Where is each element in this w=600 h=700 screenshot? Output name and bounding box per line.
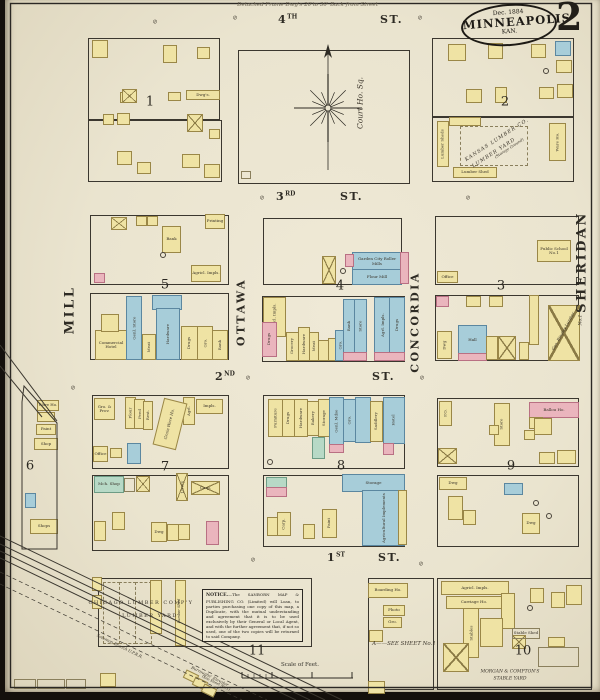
scale-label: Scale of Feet. [250, 662, 350, 668]
water-symbol: ⊘ [417, 15, 422, 22]
building [37, 679, 65, 689]
building-label: Agrl. [187, 406, 191, 416]
building-label: Grocery [290, 338, 294, 354]
building [266, 487, 287, 497]
building-agricl-impls: Agricl. Impls. [191, 265, 221, 282]
block-number-4: 4 [336, 279, 344, 294]
building-label: Meat [312, 341, 316, 351]
building-label: Bank [218, 340, 222, 350]
building-gro: Gro. [383, 617, 402, 628]
building [312, 437, 325, 459]
building-label: Dwg [526, 521, 535, 525]
water-symbol: ⊘ [70, 385, 75, 392]
building [103, 114, 114, 125]
building-dwg: Dwg [439, 477, 467, 490]
building-label: Paint [327, 518, 331, 528]
building-carp: Carp. [277, 512, 291, 536]
street-suffix: ST. [372, 370, 395, 383]
building [436, 296, 449, 307]
building [480, 618, 503, 647]
building [538, 647, 579, 667]
building-ware-ho: Ware Ho. [37, 400, 59, 411]
street-name: 1ST [327, 551, 345, 564]
lumber-stall [103, 582, 120, 644]
building-office: Office [437, 271, 458, 283]
building-label: Bank [347, 321, 351, 331]
building-bank: Bank [162, 226, 181, 253]
block-number-5: 5 [161, 278, 169, 293]
street-name-vertical-ottawa: OTTAWA [235, 278, 248, 346]
building [524, 430, 535, 440]
building [501, 593, 515, 629]
building [374, 352, 405, 361]
water-symbol: ⊘ [245, 375, 250, 382]
building [112, 512, 125, 530]
block-number-8: 8 [337, 459, 345, 474]
building-boarding-ho: Boarding Ho. [368, 583, 408, 598]
building-label: Gro. [338, 341, 342, 350]
building [187, 114, 203, 132]
building-printing: Printing [205, 214, 225, 229]
building-drugs: Drugs [389, 297, 405, 354]
building-label: Hardware [166, 324, 170, 344]
building [168, 92, 181, 101]
building [101, 314, 119, 332]
building-drugs: Drugs [262, 322, 277, 357]
building-drugs: Drugs [181, 326, 198, 360]
block-number-9: 9 [507, 459, 515, 474]
building [66, 679, 86, 689]
building [466, 296, 481, 307]
building [136, 476, 150, 492]
building-hardware: Hardware [156, 308, 180, 360]
street-name: 4TH [278, 13, 297, 26]
building-hall: Hall [458, 325, 487, 355]
map-label: Lumber Shed [177, 599, 181, 624]
building-label: Printing [207, 219, 223, 223]
building [383, 443, 394, 455]
handwritten-note: Detached Frame Dwg's 20'to 30' Back from… [210, 2, 405, 8]
building-shop: Shop [34, 438, 58, 450]
building-rest: Rest. [143, 401, 153, 430]
building [504, 483, 523, 495]
building [557, 84, 573, 98]
well-symbol [543, 68, 549, 74]
building-label: Drugs [286, 412, 290, 424]
building-label: Gro. [203, 339, 207, 348]
well-symbol [527, 605, 533, 611]
building [398, 490, 407, 545]
notice-body: —The SANBORN MAP & PUBLISHING CO. (Limit… [206, 592, 299, 639]
building [25, 493, 36, 508]
building-label: Rest. [146, 410, 150, 420]
block-number-2: 2 [501, 95, 509, 110]
building-label: Shops [38, 524, 50, 528]
building [466, 89, 482, 103]
building-label: Drugs [395, 319, 399, 331]
well-symbol [340, 268, 346, 274]
building [110, 448, 122, 458]
building [303, 524, 315, 539]
street-suffix: ST. [378, 551, 401, 564]
building [345, 254, 354, 267]
building-dwg: Dwg [151, 522, 167, 542]
building [343, 352, 367, 361]
building-shops: Shops [30, 519, 58, 534]
building-office: Office [93, 446, 108, 462]
sanborn-map: Detached Frame Dwg's 20'to 30' Back from… [0, 0, 600, 700]
building-label: Stable Shed [514, 631, 538, 635]
water-symbol: ⊘ [418, 561, 423, 568]
water-symbol: ⊘ [250, 557, 255, 564]
building [449, 117, 481, 126]
building-dwg: Dwg [522, 513, 540, 534]
building-label: Carp. [200, 486, 211, 490]
building-paint: Paint [36, 424, 56, 435]
building-dwg-s: Dwg's. [186, 90, 220, 100]
water-symbol: ⊘ [419, 375, 424, 382]
building [197, 47, 210, 59]
map-label: LUMBER YARD [122, 613, 178, 619]
map-label: Court Ho. Sq. [356, 77, 365, 129]
building-dwg: Dwg [437, 331, 452, 359]
water-symbol: ⊘ [465, 195, 470, 202]
building-label: Ballou Ho. [543, 408, 564, 412]
building-label: Dwg [448, 481, 457, 485]
building-label: Genl. Store [132, 317, 136, 340]
building [100, 673, 116, 687]
building-hardware: Hardware [294, 399, 308, 437]
building-public-school-no-1: Public School No.1 [537, 240, 571, 262]
building-label: P.O. [443, 410, 447, 417]
building [206, 521, 219, 545]
street-name: 3RD [276, 190, 295, 203]
building-label: Store [500, 419, 504, 430]
building-label: Lumber Shed [461, 170, 488, 174]
notice-title: NOTICE. [206, 593, 228, 598]
building [37, 412, 55, 422]
building-mch-shop: Mch. Shop [94, 476, 124, 493]
building-label: Hardware [302, 334, 306, 354]
building [534, 418, 552, 435]
building [92, 40, 108, 58]
building-genl-store: Genl. Store [126, 296, 142, 360]
well-symbol [533, 500, 539, 506]
building-label: Shop [41, 442, 51, 446]
building-gro: Gro. [197, 326, 213, 360]
building-hotel: Hotel [383, 397, 405, 444]
building-label: Meat [147, 342, 151, 352]
building-label: Storage [322, 410, 326, 426]
building-photo: Photo [383, 605, 405, 616]
building-label: Bank [166, 237, 176, 241]
building-label: Gro. [347, 416, 351, 425]
building-label: Agricl. Impls. [192, 271, 219, 275]
building-label: Photo [388, 608, 400, 612]
building [557, 450, 576, 464]
building-label: Gro. & Prov. [95, 405, 114, 413]
block-number-3: 3 [497, 279, 505, 294]
water-symbol: ⊘ [152, 19, 157, 26]
building [498, 336, 516, 360]
map-label: A——SEE SHEET No.1 [372, 641, 436, 647]
building-label: Carp. [282, 518, 286, 529]
building-lumber-sheds: Lumber Sheds [437, 121, 449, 167]
building [529, 295, 539, 345]
street-suffix: ST. [380, 13, 403, 26]
building-label: Ware Ho. [555, 133, 559, 152]
building-label: Feed [137, 409, 141, 419]
building [531, 44, 546, 58]
well-symbol [267, 459, 273, 465]
building [463, 510, 476, 525]
building [127, 443, 141, 464]
building-label: Commercial Hotel [96, 341, 126, 349]
building-label: Public School No.1 [538, 247, 570, 255]
building [92, 577, 102, 591]
building [539, 452, 555, 464]
block-outline [238, 50, 410, 184]
building [150, 580, 162, 634]
building-label: Hotel [392, 415, 396, 426]
building-label: Boarding Ho. [375, 588, 402, 592]
building [117, 151, 132, 165]
building [368, 681, 385, 694]
building [182, 154, 200, 168]
building [136, 216, 147, 226]
street-name-vertical-mill: MILL [63, 286, 78, 335]
building [566, 585, 582, 605]
building [209, 129, 220, 139]
building-label: Store [358, 321, 362, 332]
water-symbol: ⊘ [232, 15, 237, 22]
building-bank: Bank [212, 330, 228, 360]
building-label: Ware Ho. [39, 403, 58, 407]
building [555, 41, 571, 56]
building-stable-shed: Stable Shed [512, 628, 540, 639]
street-name-vertical-sheridan: SHERIDAN [575, 211, 590, 313]
building-label: Flour [128, 408, 132, 419]
building [241, 171, 251, 179]
building-label: Saddlery [374, 412, 378, 430]
building [111, 217, 127, 230]
building [556, 60, 572, 73]
building [489, 425, 499, 435]
building [443, 643, 469, 672]
building-saddlery: Saddlery [370, 401, 383, 442]
building-label: Stables [469, 626, 473, 641]
building-label: Lumber Sheds [441, 129, 445, 158]
building-label: Drugs [187, 337, 191, 349]
building [458, 353, 487, 361]
water-symbol: ⊘ [259, 195, 264, 202]
building-label: Agricl. Impls. [461, 586, 488, 590]
building-label: Garden City Roller Mills [353, 257, 401, 265]
block-number-11: 11 [249, 644, 266, 659]
building-label: Flour Mill [367, 275, 387, 279]
building [124, 478, 135, 492]
building [448, 44, 466, 61]
building-commercial-hotel: Commercial Hotel [95, 330, 127, 360]
building-label: Storage [366, 481, 382, 485]
building [322, 256, 336, 284]
building [94, 521, 106, 541]
building-label: Drugs [267, 333, 271, 345]
map-label: MORGAN & COMPTON'S [480, 670, 539, 675]
building [548, 637, 565, 647]
building-label: Gro. [388, 620, 397, 624]
building-label: Furniture [273, 408, 277, 428]
building-label: Livery [180, 481, 184, 494]
sheet-number: 2 [556, 0, 582, 39]
building-label: Dwg [442, 340, 446, 349]
building [137, 162, 151, 174]
well-symbol [160, 252, 166, 258]
building-label: Hardware [299, 408, 303, 428]
building [530, 588, 544, 603]
building [438, 448, 457, 464]
building-label: Agricultural Implements [381, 493, 385, 543]
building-label: Office [94, 452, 106, 456]
building [551, 592, 565, 608]
building-label: Dwg [154, 530, 163, 534]
building-label: Impls. [203, 404, 216, 408]
building-agricl-impls: Agricl. Impls. [441, 581, 509, 595]
block-number-7: 7 [161, 460, 169, 475]
street-suffix: ST. [340, 190, 363, 203]
map-label: No.1 [579, 315, 584, 326]
building [14, 679, 36, 689]
building [329, 444, 344, 453]
building [201, 683, 218, 697]
building-gro-prov: Gro. & Prov. [94, 398, 115, 420]
building [147, 216, 158, 226]
building [355, 397, 371, 443]
building-meat: Meat [142, 334, 156, 360]
building-ballou-ho: Ballou Ho. [529, 402, 579, 418]
building-ware-ho: Ware Ho. [549, 123, 566, 161]
notice-box: NOTICE.—The SANBORN MAP & PUBLISHING CO.… [202, 589, 303, 642]
well-symbol [546, 513, 552, 519]
building [204, 164, 220, 178]
building [448, 496, 463, 520]
street-name: 2ND [215, 370, 235, 383]
building-label: Bakery [311, 411, 315, 425]
block-number-10: 10 [515, 644, 532, 659]
building-paint: Paint [322, 509, 337, 538]
building [163, 45, 177, 63]
building-p-o: P.O. [439, 401, 452, 426]
building-impls: Impls. [196, 399, 223, 414]
building [178, 524, 190, 540]
building [489, 296, 503, 307]
building-label: Paint [41, 427, 51, 431]
building-label: Dwg's. [196, 93, 210, 97]
block-number-6: 6 [26, 459, 34, 474]
building [486, 336, 498, 360]
building-label: Carriage Ho. [461, 600, 487, 604]
building-label: Mch. Shop [98, 482, 120, 486]
building-label: Genl. Mdse [334, 410, 338, 433]
building [94, 273, 105, 283]
building-genl-mdse: Genl. Mdse [329, 397, 344, 446]
street-name-vertical-concordia: CONCORDIA [409, 271, 422, 373]
building-flour-mill: Flour Mill [352, 269, 402, 285]
building-livery: Livery [176, 473, 188, 501]
building-label: Office [441, 275, 453, 279]
building-store: Store [354, 299, 367, 354]
building [122, 89, 137, 103]
block-number-1: 1 [146, 95, 154, 110]
building-carp: Carp. [191, 481, 220, 495]
building-label: Agrl. Impls. [380, 314, 384, 338]
building [539, 87, 554, 99]
building-label: Hall [468, 338, 476, 342]
building [519, 342, 529, 360]
building [117, 113, 130, 125]
building-furniture: Furniture [268, 399, 283, 437]
map-label: STABLE YARD [494, 677, 527, 682]
